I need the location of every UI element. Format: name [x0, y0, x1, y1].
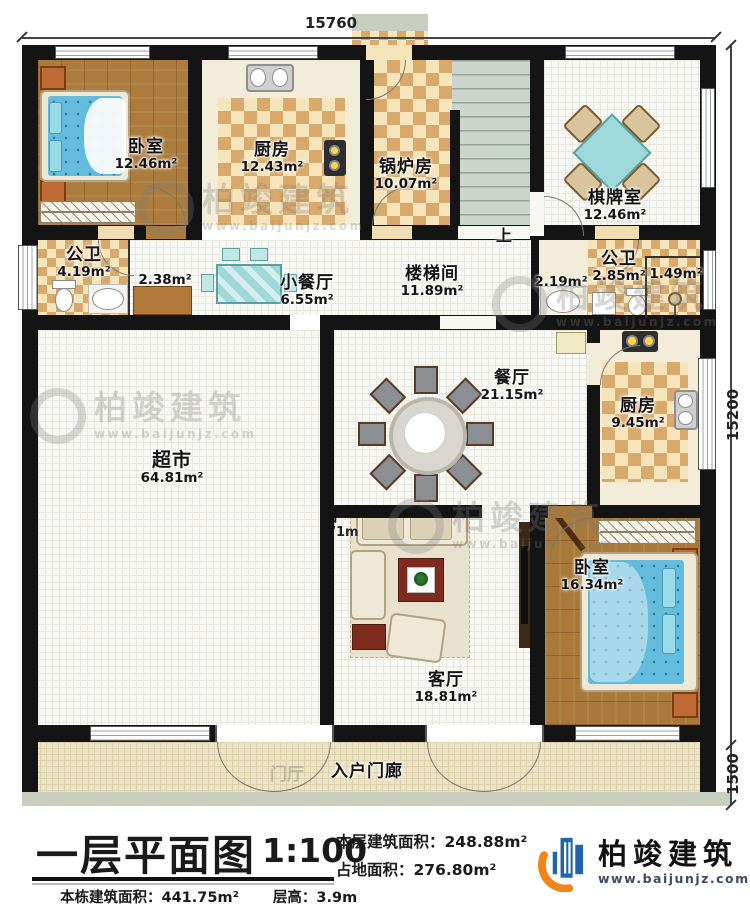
door-opening [98, 226, 134, 239]
company-name: 柏竣建筑 [598, 840, 750, 869]
round-table-group [358, 366, 490, 498]
window [575, 726, 680, 741]
dimension-line-top [22, 37, 716, 39]
nightstand [40, 66, 66, 90]
room-label-bath2: 公卫2.85m² [592, 250, 645, 284]
chair [414, 366, 438, 394]
area-label-vanity: 2.19m² [534, 274, 587, 290]
partition [645, 256, 700, 258]
room-label-living: 客厅18.81m² [415, 671, 478, 705]
door-opening [587, 343, 600, 385]
wall [334, 505, 482, 518]
wall [450, 110, 460, 240]
floor-area-value: 248.88m² [445, 833, 528, 851]
room-label-dining: 餐厅21.15m² [481, 369, 544, 403]
porch-step [22, 792, 730, 806]
chair [222, 248, 240, 261]
sink-basin [678, 394, 693, 408]
room-label-bedroom1: 卧室12.46m² [115, 138, 178, 172]
door-opening [530, 192, 544, 236]
room-label-chess: 棋牌室12.46m² [584, 189, 647, 223]
window [18, 245, 38, 310]
room-label-kitchen1: 厨房12.43m² [241, 141, 304, 175]
burner [329, 160, 340, 171]
wall [530, 505, 545, 725]
door-opening [548, 506, 592, 518]
wall [334, 315, 716, 330]
site-area-label: 占地面积： [336, 861, 414, 879]
room-label-bedroom2: 卧室16.34m² [561, 559, 624, 593]
building-area-value: 441.75m² [162, 890, 239, 906]
title-underline [32, 877, 334, 881]
floor-plan: 台 .71m 卧室12.4 [0, 0, 750, 908]
stair-passage [458, 226, 530, 239]
window [228, 46, 318, 59]
table-top [404, 412, 446, 454]
toilet-bowl [55, 288, 73, 312]
chair [201, 274, 214, 292]
ghost-label: 门厅 [270, 760, 304, 785]
chair [414, 474, 438, 502]
door-opening [595, 226, 639, 239]
dimension-top: 15760 [305, 14, 357, 32]
wash-basin [92, 288, 124, 310]
sink-basin [250, 68, 266, 87]
room-label-supermarket: 超市64.81m² [141, 450, 204, 486]
floor-area-row: 本层建筑面积：248.88m² [336, 830, 527, 852]
window [90, 726, 210, 741]
armchair [385, 612, 447, 663]
room-label-stairwell: 楼梯间11.89m² [401, 265, 464, 299]
door-opening [366, 45, 412, 60]
wardrobe-rail [42, 211, 134, 213]
room-label-kitchen2: 厨房9.45m² [611, 397, 664, 431]
door-opening [425, 725, 544, 742]
stairs-up-label: 上 [496, 222, 512, 246]
window [701, 88, 715, 188]
company-logo-icon [538, 834, 590, 892]
dimension-right: 15200 [724, 389, 742, 441]
wall [188, 60, 202, 230]
company-url: www.baijunjz.com [598, 871, 750, 886]
floor-mat [352, 624, 386, 650]
pillow [662, 568, 676, 608]
sink-basin [678, 411, 693, 425]
burner [643, 335, 655, 347]
wall [320, 315, 334, 725]
window [565, 46, 675, 59]
building-area-label: 本栋建筑面积： [60, 890, 162, 906]
window [55, 46, 150, 59]
tv [521, 546, 528, 624]
sofa [350, 550, 386, 620]
toilet-bowl [628, 295, 646, 316]
door-opening [372, 226, 412, 239]
site-area-row: 占地面积：276.80m² [336, 858, 496, 880]
window [698, 358, 716, 470]
shower-head [668, 292, 682, 306]
closet [133, 286, 192, 315]
window [703, 250, 716, 310]
room-label-boiler: 锅炉房10.07m² [375, 158, 438, 192]
chair [358, 422, 386, 446]
door-opening [215, 725, 334, 742]
dimension-porch: 1500 [724, 753, 742, 795]
height-value: 3.9m [316, 890, 357, 906]
building-area-row: 本栋建筑面积：441.75m²层高：3.9m [60, 886, 357, 907]
fridge [556, 332, 586, 354]
stairs [452, 60, 530, 238]
plant [414, 572, 428, 586]
pillow [49, 102, 62, 134]
wash-basin [546, 290, 580, 313]
room-label-dining-small: 小餐厅6.55m² [280, 274, 334, 308]
boiler-entry-step [352, 14, 428, 31]
area-label-shower: 1.49m² [649, 266, 702, 282]
pillow [662, 614, 676, 654]
washing-machine [592, 292, 616, 315]
company-logo: 柏竣建筑 www.baijunjz.com [538, 834, 750, 892]
room-label-porch: 入户门廊 [331, 762, 403, 781]
wall [22, 45, 38, 792]
chair [250, 248, 268, 261]
chair [466, 422, 494, 446]
site-area-value: 276.80m² [414, 861, 497, 879]
wardrobe-rail [600, 531, 694, 533]
door-opening [146, 226, 186, 239]
sink-basin [272, 68, 288, 87]
burner [329, 145, 340, 156]
area-label-closet: 2.38m² [138, 272, 191, 288]
wall [22, 315, 290, 330]
supermarket-floor [38, 330, 320, 725]
floor-area-label: 本层建筑面积： [336, 833, 445, 851]
room-label-bath1: 公卫4.19m² [57, 246, 110, 280]
sheet-title: 一层平面图 [36, 822, 256, 883]
nightstand [672, 692, 698, 718]
dining-table-small [216, 264, 282, 304]
pillow [49, 140, 62, 172]
passage [440, 316, 496, 329]
title-underline-shadow [32, 883, 334, 885]
height-label: 层高： [273, 890, 317, 906]
